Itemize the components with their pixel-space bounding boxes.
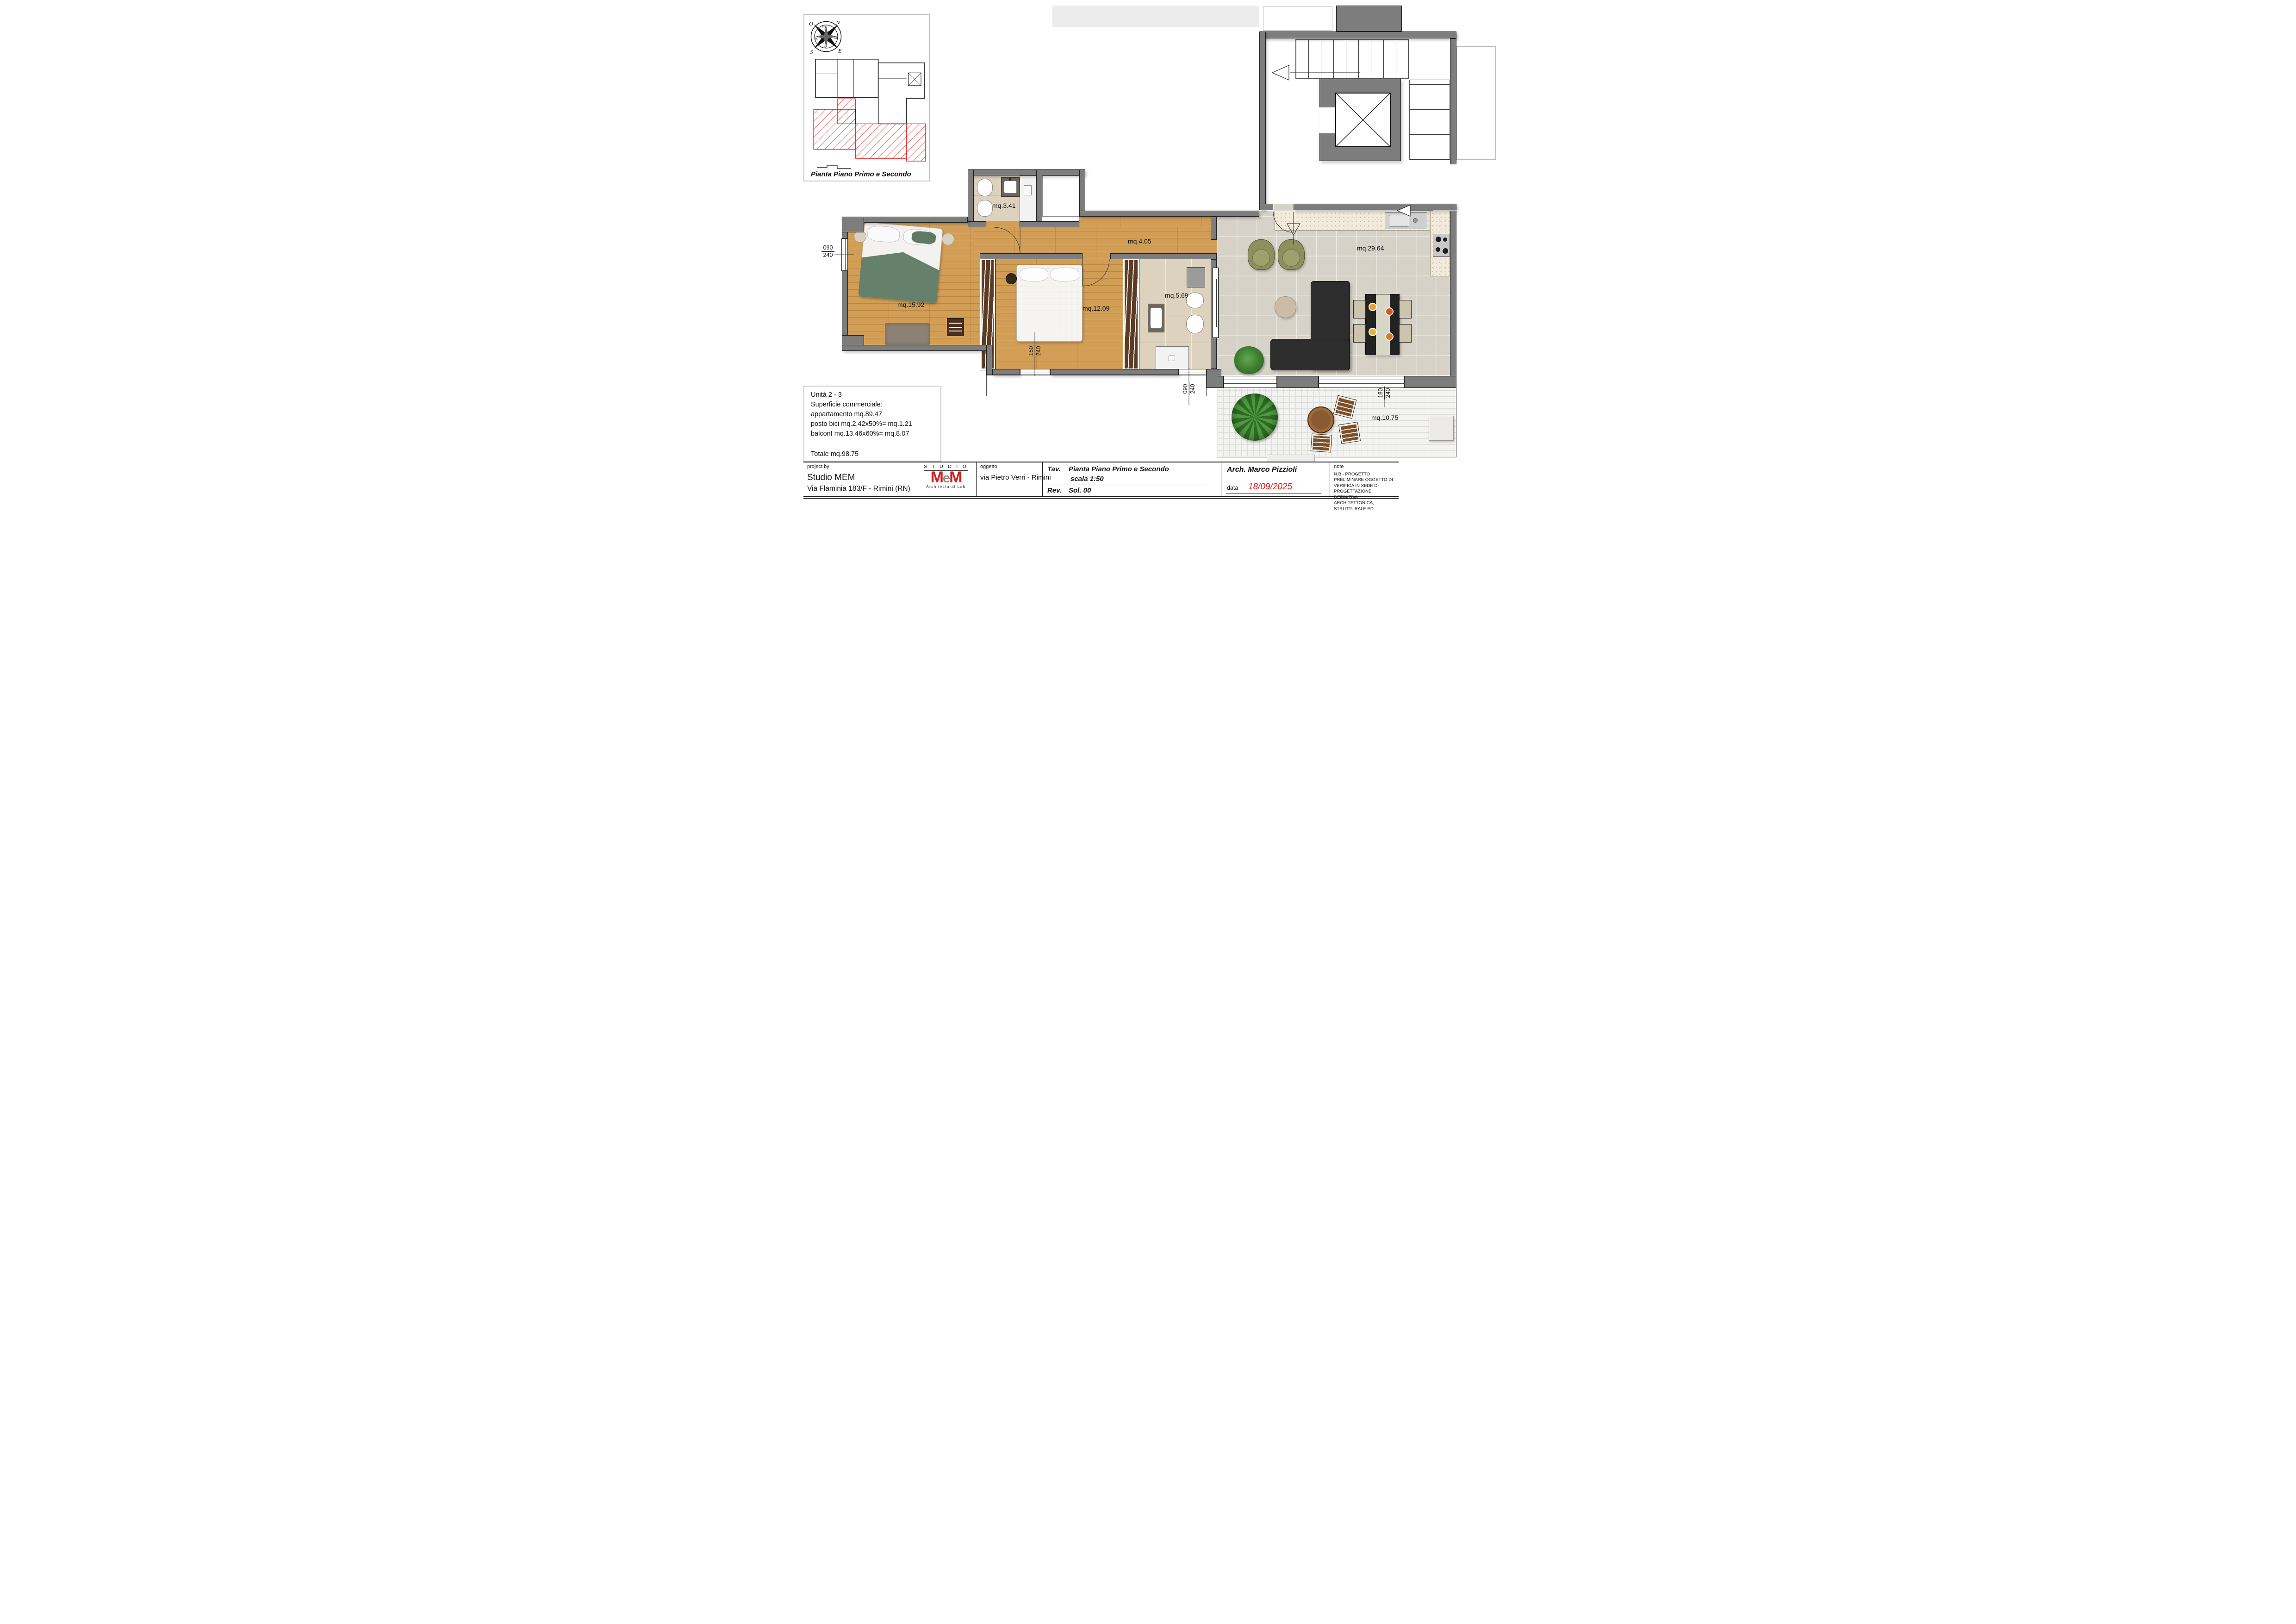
oggetto-label: oggetto (980, 464, 997, 469)
terrace-chair (1311, 434, 1332, 453)
dim-height: 240 (1035, 336, 1042, 366)
wall (1259, 204, 1273, 210)
wall (1020, 221, 1079, 227)
studio-mem-logo: S T U D I O MeM Architectural Lab (923, 465, 969, 489)
wall (992, 369, 1020, 375)
dim-width: 090 (821, 244, 835, 252)
wall (1079, 169, 1085, 217)
floor-entry-gap (1273, 204, 1294, 211)
stool-round (1006, 273, 1017, 284)
drawing-sheet: N E S O NO NE SE SO (786, 0, 1510, 512)
neighbor-outline-right (1456, 46, 1496, 160)
room-label-camera-2: mq.12.09 (1083, 305, 1109, 312)
armchair (1278, 239, 1305, 270)
dim-door-terrazzo: 180 240 (1377, 378, 1391, 408)
ghost-structure (1052, 6, 1259, 27)
wall-pier (1217, 376, 1224, 388)
bed-matrimoniale-1 (858, 222, 943, 303)
data-value: 18/09/2025 (1248, 482, 1292, 492)
stair-treads-right (1409, 80, 1450, 160)
compass-o: O (809, 20, 813, 27)
logo-e: e (943, 471, 949, 486)
gas-hob (1433, 234, 1450, 257)
room-label-camera-1: mq.15.92 (897, 301, 924, 308)
dining-chair (1353, 324, 1366, 343)
wardrobe-2 (1123, 258, 1139, 370)
dim-width: 090 (1182, 382, 1189, 396)
wall (1294, 204, 1456, 210)
wall (1211, 217, 1217, 240)
rev-value: Sol. 00 (1069, 487, 1091, 494)
dim-width: 150 (1028, 344, 1035, 358)
window-camera2 (1020, 369, 1050, 375)
floor-door-gap (986, 221, 1020, 227)
sofa-horizontal (1270, 339, 1350, 370)
section-note: note N.B.- PROGETTO PRELIMINARE OGGETTO … (1330, 462, 1399, 496)
dining-chair (1399, 300, 1412, 319)
elevator-door-gap (1319, 107, 1335, 133)
summary-balcony: balconI mq.13.46x60%= mq.8.07 (811, 429, 909, 439)
logo-subtitle: Architectural Lab (926, 485, 966, 489)
section-oggetto: oggetto via Pietro Verri - Rimini (976, 462, 1043, 496)
glass-door-terrace-1 (1224, 376, 1277, 388)
dresser (947, 318, 964, 336)
dim-height: 240 (1189, 374, 1196, 404)
dim-height: 240 (1385, 378, 1391, 408)
project-by-label: project by (807, 464, 829, 469)
section-tav: Tav. Pianta Piano Primo e Secondo scala … (1042, 462, 1221, 496)
tav-scale: scala 1:50 (1070, 475, 1104, 483)
shower-drain (1169, 356, 1175, 361)
compass-s: S (810, 49, 813, 55)
logo-mem-text: MeM (931, 471, 962, 484)
plant (1234, 346, 1264, 374)
bed-matrimoniale-2 (1016, 265, 1083, 342)
faucet (1009, 178, 1011, 181)
title-block-bottom-rule (803, 498, 1399, 499)
shower-tray (1020, 175, 1036, 221)
compass-e: E (838, 48, 842, 54)
studio-name: Studio MEM (807, 473, 855, 483)
compass-icon: N E S O NO NE SE SO (808, 19, 844, 55)
compass-n: N (836, 19, 840, 26)
dim-window-bagno2: 090 240 (1182, 374, 1196, 404)
armchair (1248, 239, 1275, 270)
oggetto-value: via Pietro Verri - Rimini (980, 474, 1051, 481)
toilet (1186, 315, 1204, 333)
logo-m2: M (949, 468, 961, 486)
summary-total: Totale mq.98.75 (811, 450, 859, 459)
rug (885, 323, 930, 345)
wall-pier (1404, 376, 1456, 388)
compass-ne: NE (834, 36, 838, 39)
rev-label: Rev. (1047, 487, 1062, 494)
summary-unit: Unità 2 - 3 (811, 390, 842, 400)
sink-basin (1150, 307, 1162, 329)
architect-name: Arch. Marco Pizzioli (1227, 466, 1297, 474)
section-step-icon (816, 164, 852, 170)
terrace-chair (1338, 422, 1361, 444)
data-underline (1226, 493, 1321, 493)
summary-header: Superficie commerciale: (811, 400, 883, 410)
bidet (977, 200, 993, 217)
balcony (986, 375, 1207, 396)
room-label-disimpegno: mq.4.05 (1128, 237, 1151, 245)
floor-disimpegno-2 (1079, 217, 1217, 227)
wall (1050, 369, 1179, 375)
nightstand-round (942, 233, 954, 245)
room-label-terrazzo: mq.10.75 (1371, 414, 1398, 421)
wall (968, 169, 974, 227)
shaft-niche (1042, 175, 1079, 217)
tav-title: Pianta Piano Primo e Secondo (1069, 465, 1169, 473)
room-label-bagno-1: mq.3.41 (992, 202, 1016, 209)
terrace-planter (1429, 416, 1454, 441)
shower-drain (1024, 185, 1032, 195)
key-plan-map (810, 56, 927, 163)
wall (842, 345, 992, 351)
compass-se: SE (824, 46, 827, 49)
dim-height: 240 (813, 252, 843, 258)
elevator-cab (1335, 93, 1391, 147)
compass-so: SO (815, 37, 818, 41)
dim-window-west: 090 240 (813, 244, 843, 258)
key-panel: N E S O NO NE SE SO (803, 14, 930, 181)
dim-width: 180 (1377, 387, 1385, 400)
wall (980, 253, 1083, 259)
wall (1036, 169, 1042, 227)
tav-divider-line (1045, 485, 1207, 485)
wall-roof-structure (1336, 6, 1402, 31)
pouf (1275, 296, 1296, 318)
wall-stairwell (1450, 38, 1456, 164)
glass-door-terrace-2 (1319, 376, 1404, 388)
key-panel-caption: Pianta Piano Primo e Secondo (811, 170, 927, 178)
dining-table (1365, 294, 1400, 355)
summary-box: Unità 2 - 3 Superficie commerciale: appa… (803, 386, 941, 462)
summary-bike: posto bici mq.2.42x50%= mq.1.21 (811, 419, 912, 429)
stair-mid-line (1295, 59, 1409, 59)
palm-plant (1232, 394, 1278, 441)
dining-chair (1399, 324, 1412, 343)
wall-pier (842, 217, 864, 232)
data-label: data (1227, 485, 1238, 491)
wall-pier (1277, 376, 1319, 388)
wall (1079, 211, 1259, 217)
wall-stairwell (1259, 31, 1456, 38)
neighbor-outline-top (1263, 6, 1332, 31)
washing-machine (1187, 267, 1205, 287)
terrace-table (1307, 406, 1334, 433)
wall-stairwell (1259, 31, 1266, 210)
wall (968, 169, 1085, 175)
room-label-bagno-2: mq.5.69 (1165, 292, 1188, 299)
section-architect: Arch. Marco Pizzioli data 18/09/2025 (1221, 462, 1330, 496)
sink-basin (1004, 181, 1017, 194)
pocket-door (1213, 268, 1219, 338)
wall (1450, 211, 1456, 388)
studio-address: Via Flaminia 183/F - Rimini (RN) (807, 485, 910, 493)
toilet (977, 179, 993, 196)
kitchen-sink (1385, 212, 1427, 229)
wall (1110, 253, 1217, 259)
compass-no: NO (821, 26, 826, 29)
wall (968, 221, 986, 227)
dining-chair (1353, 300, 1366, 319)
tav-label: Tav. (1047, 465, 1061, 473)
logo-m1: M (931, 468, 943, 486)
section-project-by: project by Studio MEM Via Flaminia 183/F… (803, 462, 976, 496)
note-label: note (1334, 464, 1344, 469)
title-block: project by Studio MEM Via Flaminia 183/F… (803, 462, 1399, 497)
bidet (1186, 293, 1204, 308)
note-text: N.B.- PROGETTO PRELIMINARE OGGETTO DI VE… (1334, 472, 1396, 512)
wall (986, 345, 992, 375)
summary-apartment: appartamento mq.89.47 (811, 410, 882, 419)
dim-window-camera2: 150 240 (1028, 336, 1042, 366)
room-label-soggiorno: mq.29.64 (1357, 244, 1384, 252)
